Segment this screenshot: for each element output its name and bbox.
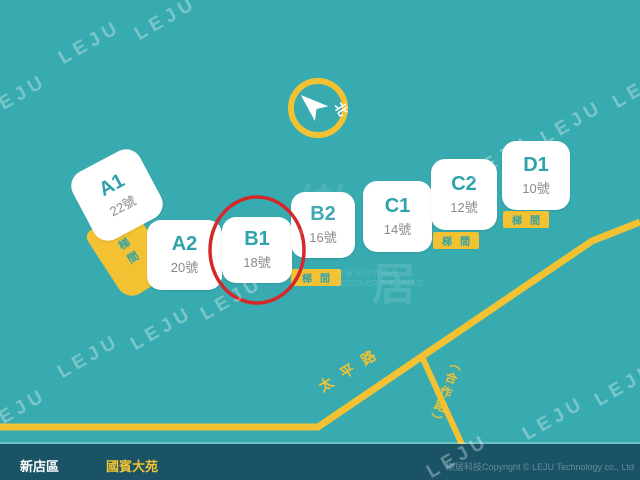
watermark-text: LEJU: [591, 358, 640, 411]
building-d1-number: 10號: [522, 178, 549, 197]
watermark-text: LEJU: [0, 70, 51, 123]
district-label: 新店區: [20, 456, 59, 475]
stairwell-tag-d: 梯間: [503, 211, 549, 228]
watermark-text: LEJU: [131, 0, 201, 46]
building-b1[interactable]: B1 18號: [222, 217, 292, 283]
watermark-text: LEJU: [127, 302, 197, 355]
building-d1[interactable]: D1 10號: [502, 141, 570, 210]
watermark-text: LEJU: [54, 330, 124, 383]
building-c1[interactable]: C1 14號: [363, 181, 432, 252]
watermark-text: LEJU: [609, 60, 640, 113]
building-c1-number: 14號: [384, 219, 411, 238]
stairwell-tag-b: 梯間: [291, 269, 341, 286]
building-b1-label: B1: [244, 229, 270, 250]
watermark-text: LEJU: [0, 384, 51, 437]
building-c2-label: C2: [451, 174, 477, 195]
road-label-hezuo: （合作路）: [424, 355, 467, 431]
stairwell-tag-label: 梯間: [504, 212, 548, 227]
watermark-tagline-zh: 發現居住的價值: [336, 268, 399, 279]
north-arrow-icon: [294, 88, 328, 122]
building-b2[interactable]: B2 16號: [291, 192, 355, 258]
community-site-map: 太平路 （合作路） 梯間 梯間 梯間 梯間 A1 22號 A2 20號 B1 1…: [0, 0, 640, 480]
building-d1-label: D1: [523, 155, 549, 176]
building-a2-label: A2: [172, 234, 198, 255]
stairwell-tag-label: 梯間: [294, 270, 338, 285]
building-c2[interactable]: C2 12號: [431, 159, 497, 230]
watermark-text: LEJU: [55, 16, 125, 69]
building-c1-label: C1: [385, 196, 411, 217]
compass-ring: [291, 81, 345, 135]
watermark-text: LEJU: [519, 392, 589, 445]
community-label: 國賓大苑: [106, 456, 158, 475]
building-a2-number: 20號: [171, 257, 198, 276]
stairwell-tag-label: 梯間: [434, 233, 478, 248]
building-a2[interactable]: A2 20號: [147, 220, 222, 290]
building-c2-number: 12號: [450, 197, 477, 216]
road-label-taiping: 太平路: [315, 340, 389, 397]
watermark-tagline-en: DISCOVER THE VALUE: [336, 279, 424, 288]
watermark-logo-char: 居: [372, 248, 416, 312]
compass-north-label: 北: [331, 100, 351, 119]
building-b1-number: 18號: [243, 252, 270, 271]
stairwell-tag-c: 梯間: [433, 232, 479, 249]
building-b2-number: 16號: [309, 227, 336, 246]
footer-bar: 新店區 國賓大苑 樂居科技Copyright © LEJU Technology…: [0, 444, 640, 480]
stairwell-ribbon-label: 梯間: [114, 235, 145, 271]
copyright-text: 樂居科技Copyright © LEJU Technology co., Ltd: [446, 460, 634, 473]
building-b2-label: B2: [310, 204, 336, 225]
